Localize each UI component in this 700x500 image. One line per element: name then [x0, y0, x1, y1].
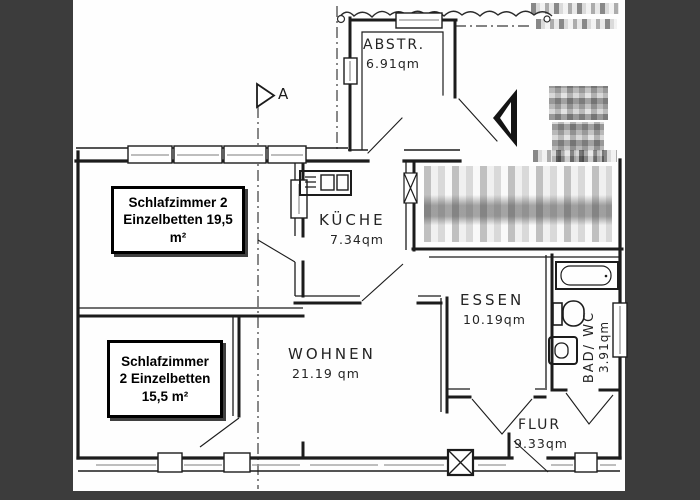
room-label-flur: FLUR [518, 417, 561, 433]
annotation-line: 2 Einzelbetten [120, 370, 211, 388]
annotation-line: m² [170, 229, 187, 247]
room-label-essen: ESSEN [460, 291, 524, 309]
redacted-mosaic [549, 86, 608, 120]
redacted-mosaic [533, 150, 617, 162]
room-area-abstr: 6.91qm [366, 56, 420, 71]
room-label-wohnen: WOHNEN [288, 345, 376, 363]
annotation-line: Einzelbetten 19,5 [123, 211, 233, 229]
redacted-mosaic [531, 3, 619, 14]
annotation-line: Schlafzimmer 2 [128, 194, 227, 212]
section-marker-label: A [278, 85, 289, 103]
annotation-box-bedroom1: Schlafzimmer 2 Einzelbetten 19,5 m² [111, 186, 245, 254]
room-area-essen: 10.19qm [463, 312, 526, 327]
room-label-kueche: KÜCHE [319, 211, 386, 229]
room-area-flur: 9.33qm [514, 436, 568, 451]
redacted-mosaic [536, 19, 617, 29]
annotation-line: 15,5 m² [142, 388, 189, 406]
room-area-kueche: 7.34qm [330, 232, 384, 247]
annotation-line: Schlafzimmer [121, 353, 209, 371]
room-area-wohnen: 21.19 qm [292, 366, 360, 381]
room-label-abstr: ABSTR. [363, 37, 425, 53]
room-area-bad: 3.91qm [597, 321, 611, 373]
room-label-bad: BAD/ WC 3.91qm [549, 300, 643, 394]
annotation-box-bedroom2: Schlafzimmer 2 Einzelbetten 15,5 m² [107, 340, 223, 418]
room-label-bad-name: BAD/ WC [582, 311, 597, 383]
redacted-mosaic [424, 166, 612, 242]
floor-plan-canvas: A ABSTR. 6.91qm KÜCHE 7.34qm WOHNEN 21.1… [0, 0, 700, 500]
